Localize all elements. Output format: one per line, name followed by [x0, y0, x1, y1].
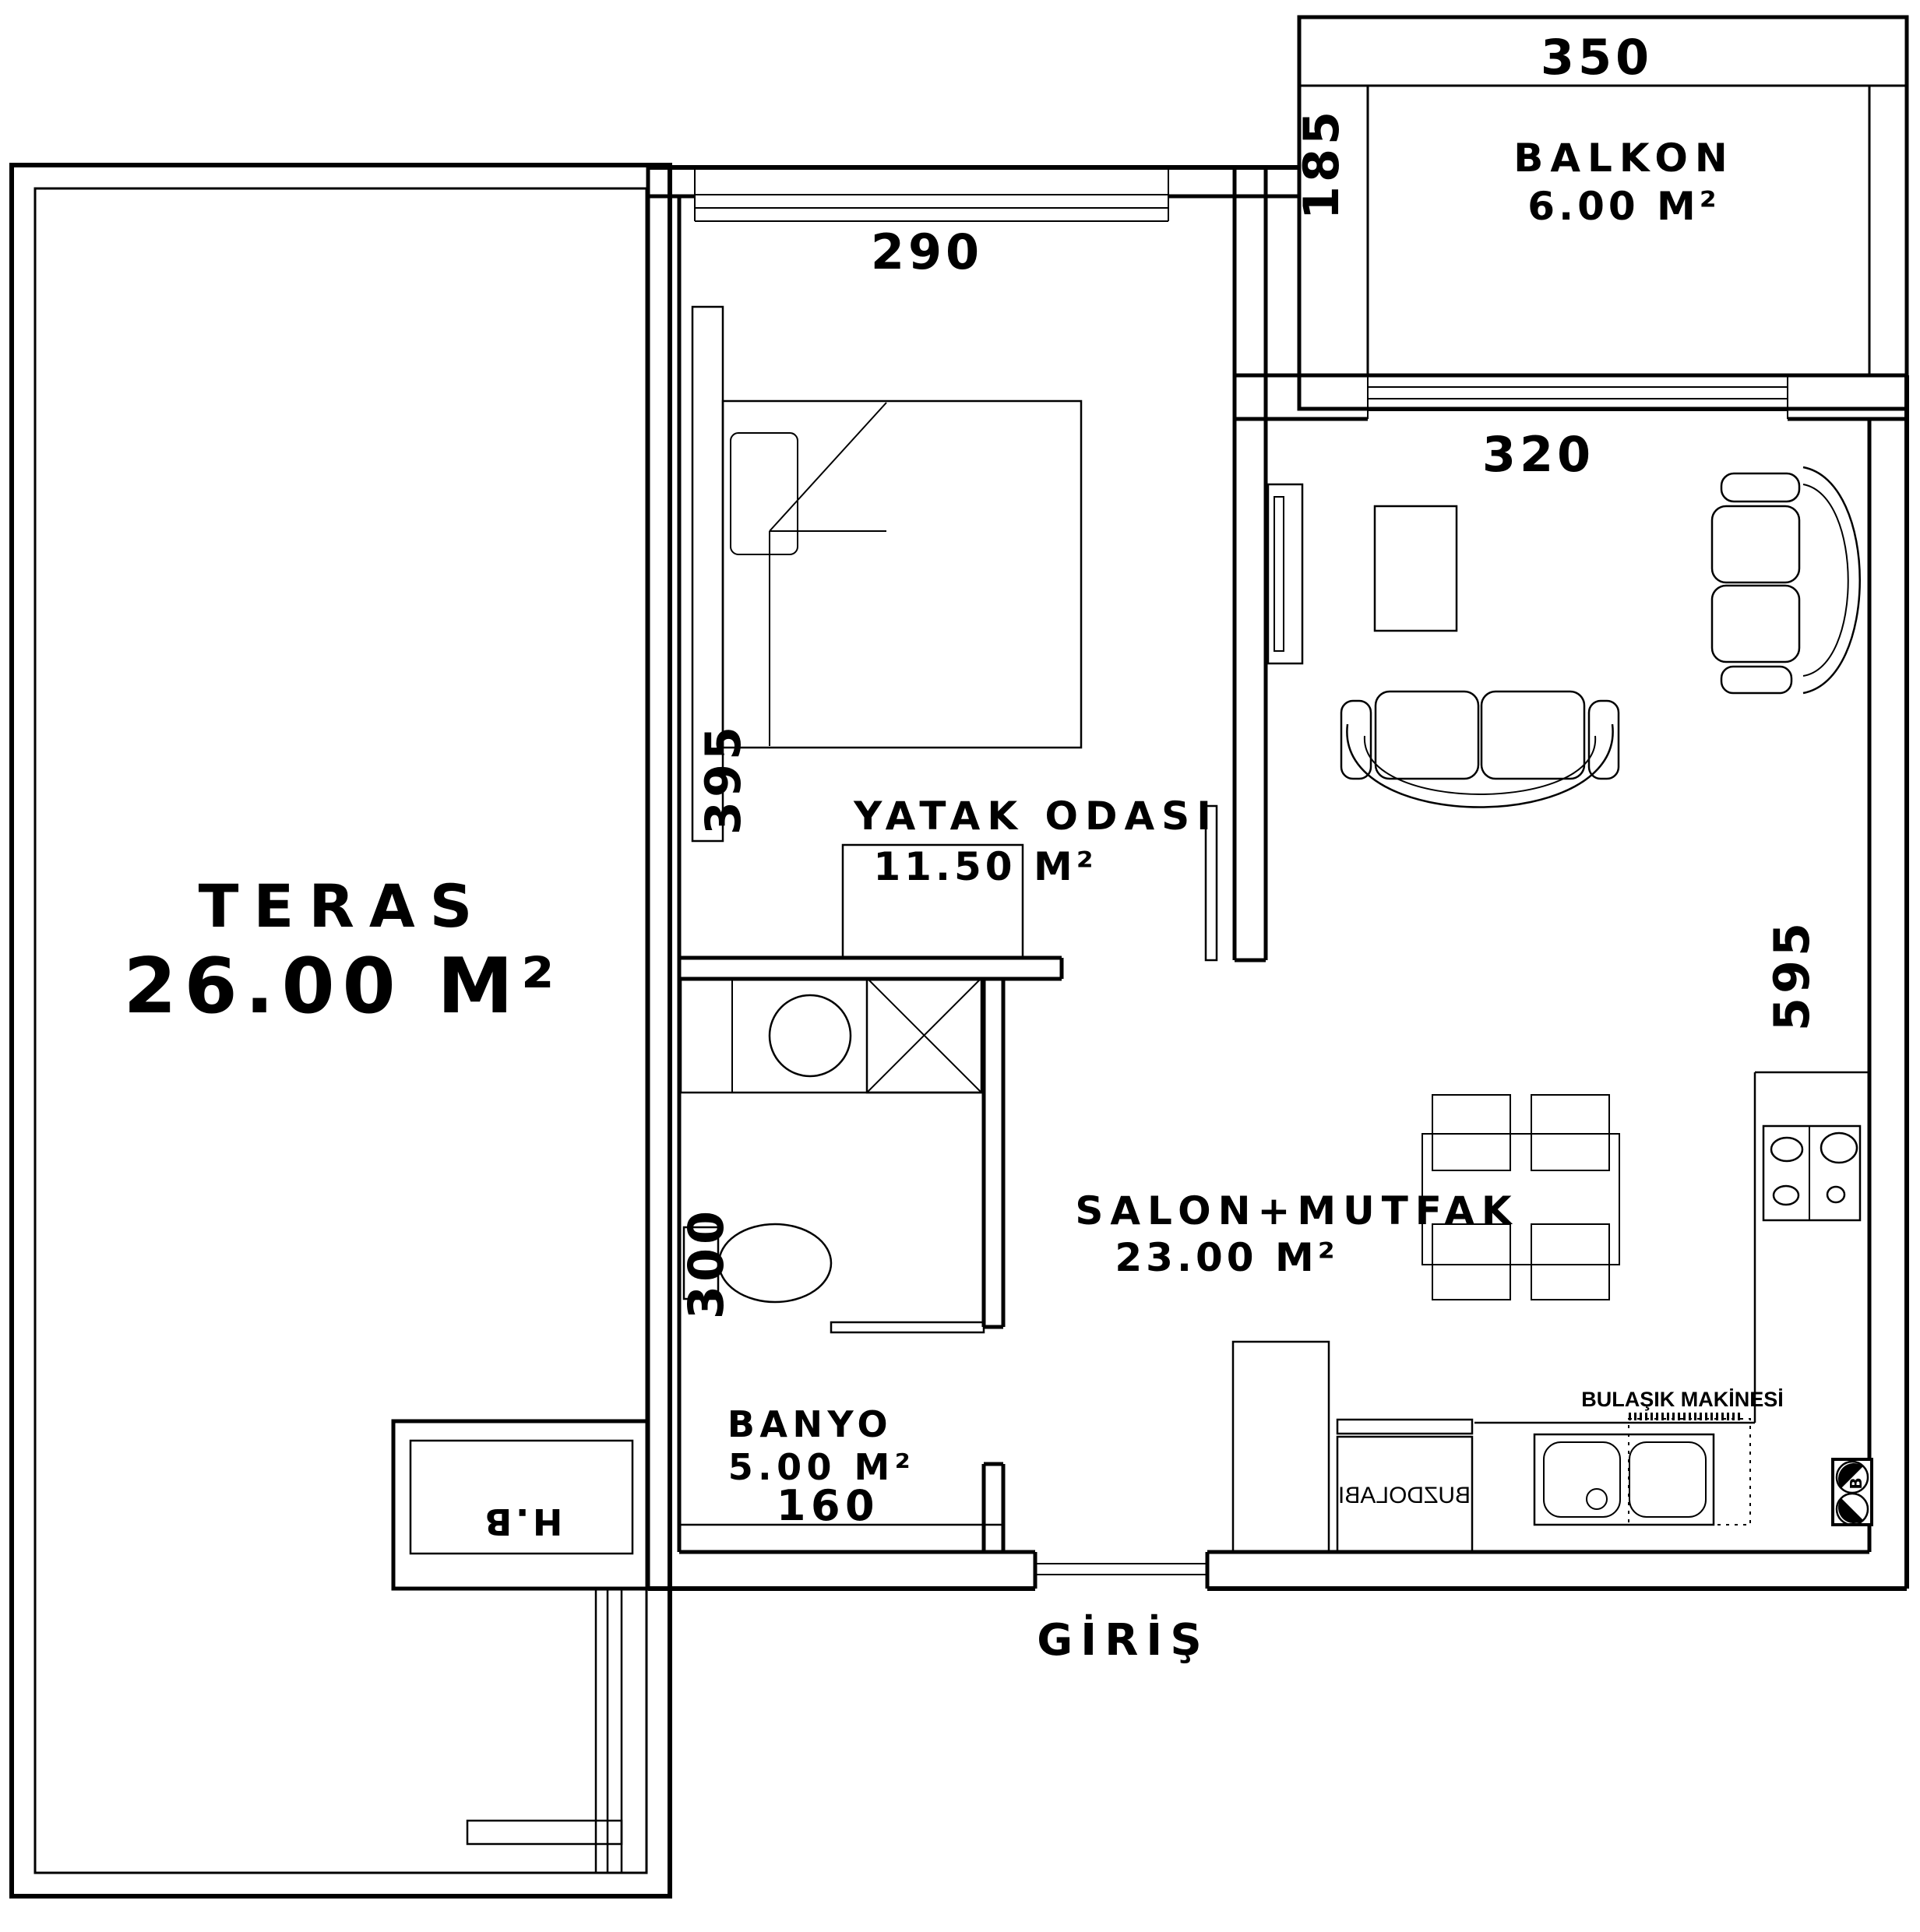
dining-chair: [1531, 1224, 1609, 1300]
sofa-armrest: [1721, 473, 1799, 501]
bedroom-label: YATAK ODASI: [853, 794, 1218, 839]
sink-unit: [1534, 1434, 1714, 1525]
bathroom-door-leaf: [831, 1322, 984, 1332]
dining-chair: [1432, 1095, 1510, 1170]
dishwasher-label: BULAŞIK MAKİNESİ: [1581, 1388, 1784, 1411]
balcony-depth-dim: 185: [1293, 107, 1350, 220]
burner: [1827, 1187, 1844, 1202]
terrace-area-label: 26.00 M²: [124, 942, 562, 1031]
floor-plan-sheet: TERAS 26.00 M² 290 395: [0, 0, 1920, 1932]
salon-area-label: 23.00 M²: [1115, 1235, 1338, 1280]
salon-depth-dim: 595: [1763, 919, 1820, 1031]
sofa-back-inner: [1365, 736, 1595, 794]
bed-body: [723, 401, 1081, 748]
terrace-label: TERAS: [199, 871, 488, 941]
burner: [1771, 1138, 1802, 1161]
stove: [1763, 1126, 1860, 1220]
balcony-area-label: 6.00 M²: [1527, 184, 1720, 229]
sofa-bottom: [1341, 692, 1619, 808]
salon: 320 595 SALON+MUTFAK 23.00 M²: [1075, 426, 1872, 1552]
sink-drain: [1587, 1489, 1607, 1509]
west-wall: [648, 165, 679, 1589]
dishwasher: BULAŞIK MAKİNESİ: [1581, 1388, 1784, 1525]
burner: [1774, 1186, 1798, 1205]
hb-shaft-label: H.B: [481, 1501, 563, 1543]
salon-north-wall: [1235, 375, 1907, 419]
washbasin: [770, 995, 851, 1076]
bed-blanket-fold: [770, 403, 886, 531]
burner: [1821, 1133, 1857, 1163]
sofa-cushion: [1712, 586, 1799, 662]
south-wall: GİRİŞ: [648, 1552, 1907, 1666]
salon-label: SALON+MUTFAK: [1075, 1188, 1518, 1233]
bathroom-depth-dim: 300: [678, 1207, 735, 1319]
terrace: TERAS 26.00 M²: [12, 165, 670, 1896]
sofa-armrest: [1341, 701, 1371, 779]
tv-screen: [1274, 497, 1284, 651]
balcony-width-dim: 350: [1541, 29, 1653, 86]
bedroom-width-dim: 290: [871, 223, 983, 280]
east-wall: [1869, 375, 1907, 1589]
sofa-cushion: [1712, 506, 1799, 582]
balcony: 350 185 BALKON 6.00 M²: [1293, 17, 1907, 409]
bathroom-width-dim: 160: [777, 1481, 879, 1530]
bathroom: 300 BANYO 5.00 M² 160: [678, 978, 1003, 1552]
sofa-back-inner: [1803, 484, 1848, 676]
dining-chair: [1432, 1224, 1510, 1300]
bathroom-counter: [681, 978, 983, 1093]
fridge: BUZDOLABI: [1337, 1420, 1472, 1551]
balcony-label: BALKON: [1513, 135, 1735, 181]
sofa-cushion: [1376, 692, 1478, 779]
dining-chair: [1531, 1095, 1609, 1170]
bed-pillow: [731, 433, 798, 554]
sink-basin: [1544, 1442, 1620, 1517]
salon-width-dim: 320: [1482, 426, 1594, 483]
bedroom: 290 395 YATAK ODASI 11.50 M²: [648, 167, 1299, 979]
bathroom-label: BANYO: [727, 1403, 893, 1445]
sofa-armrest: [1589, 701, 1619, 779]
kitchen-sink: [1534, 1434, 1714, 1525]
kitchen-cabinet: [1233, 1342, 1329, 1552]
floor-plan-drawing: TERAS 26.00 M² 290 395: [0, 0, 1920, 1932]
sink-basin: [1629, 1442, 1706, 1517]
sofa-armrest: [1721, 667, 1791, 693]
entrance-label: GİRİŞ: [1037, 1615, 1210, 1666]
toilet-bowl: [719, 1224, 831, 1302]
hb-shaft: H.B: [393, 1421, 648, 1589]
sofa-cushion: [1481, 692, 1584, 779]
fridge-door: [1337, 1420, 1472, 1434]
terrace-step: [467, 1821, 622, 1844]
sofa-right: [1712, 467, 1860, 693]
electric-symbol: B: [1833, 1459, 1872, 1525]
fridge-label: BUZDOLABI: [1338, 1483, 1471, 1508]
tv-unit: [1268, 484, 1302, 663]
bedroom-area-label: 11.50 M²: [873, 844, 1097, 889]
coffee-table: [1375, 506, 1457, 631]
sofa-back: [1803, 467, 1860, 693]
electric-letter: B: [1847, 1477, 1865, 1489]
